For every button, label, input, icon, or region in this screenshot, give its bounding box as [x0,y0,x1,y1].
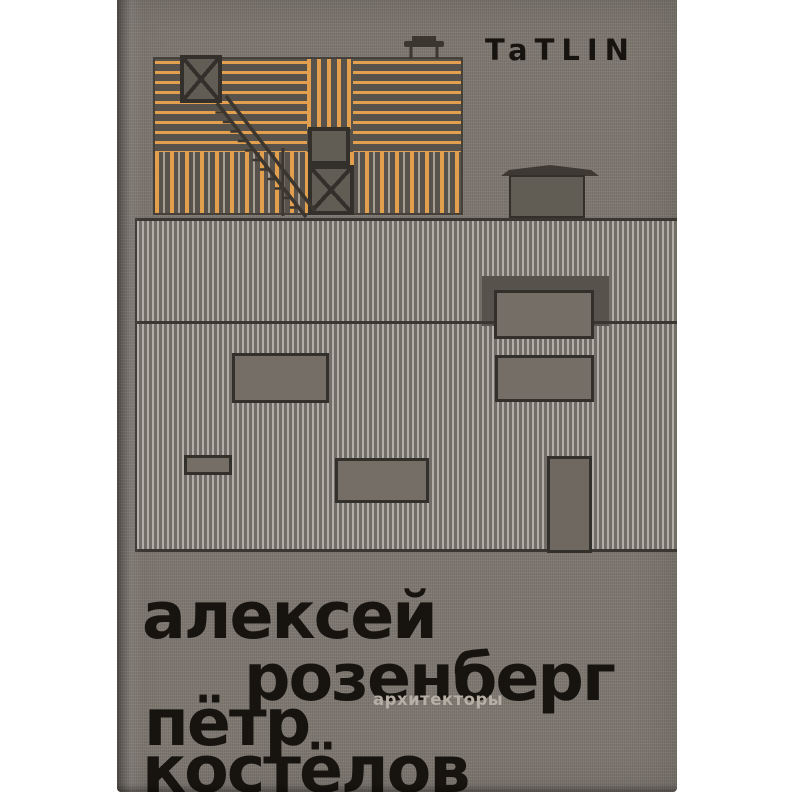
window-upper-right [494,290,594,339]
window-mid-right [495,355,594,402]
window-lower-center [335,458,429,503]
window-center-plain [308,127,350,165]
window-mid-left [232,353,329,403]
facade-seam-line [137,321,677,324]
braced-window-center-lower [308,165,354,215]
roof-tank [509,175,585,218]
publisher-logo: TaTLIN [485,33,636,67]
braced-window-top-left [180,55,222,103]
author-name-line-1: алексей [142,584,436,649]
roof-vent [404,36,444,59]
entry-door [547,456,592,553]
upper-volume-illustration [153,57,463,215]
window-small-left [184,455,232,475]
book-cover: TaTLIN [117,0,677,792]
lower-volume-illustration [135,218,677,552]
page-background: TaTLIN [0,0,800,800]
plank-siding-left [155,61,307,152]
subtitle-label: архитекторы [373,690,503,709]
author-name-line-4: костёлов [142,738,468,792]
plank-siding-right [353,61,461,152]
plank-siding-column [307,59,353,129]
